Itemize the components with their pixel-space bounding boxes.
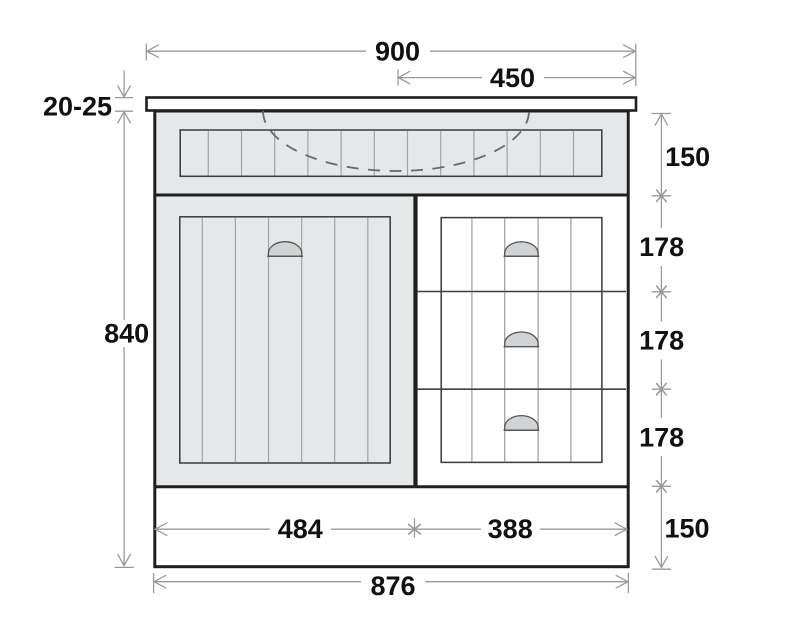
svg-text:484: 484 xyxy=(278,514,323,544)
svg-text:450: 450 xyxy=(490,63,535,93)
svg-text:840: 840 xyxy=(104,319,149,349)
svg-text:150: 150 xyxy=(665,142,710,172)
svg-text:388: 388 xyxy=(488,514,533,544)
svg-text:178: 178 xyxy=(639,326,684,356)
svg-text:178: 178 xyxy=(639,422,684,452)
svg-text:150: 150 xyxy=(664,514,709,544)
svg-text:876: 876 xyxy=(370,571,415,601)
svg-text:900: 900 xyxy=(375,37,420,67)
svg-text:178: 178 xyxy=(639,232,684,262)
svg-text:20-25: 20-25 xyxy=(43,92,112,122)
